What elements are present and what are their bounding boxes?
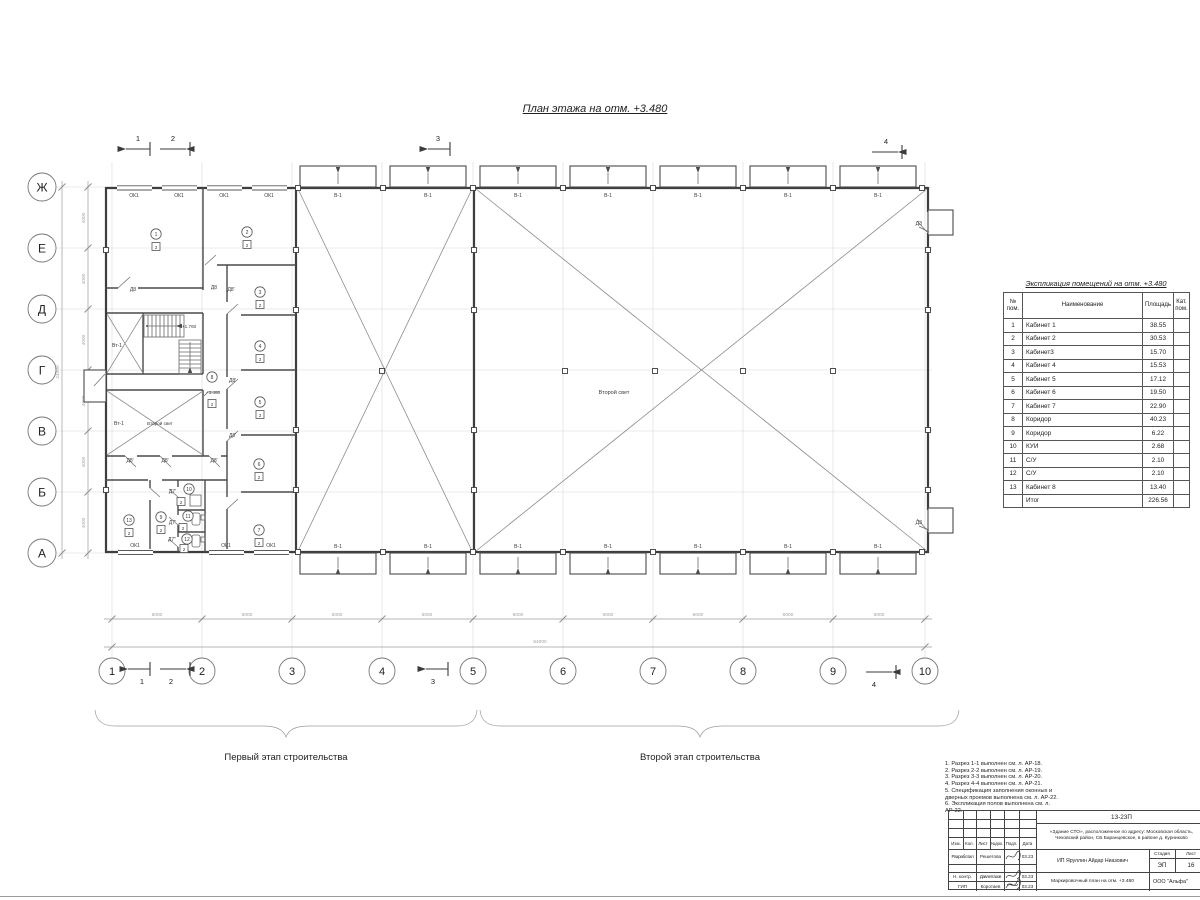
svg-text:В-1: В-1 bbox=[514, 544, 522, 550]
svg-text:11: 11 bbox=[185, 514, 190, 520]
svg-text:2: 2 bbox=[182, 526, 185, 531]
door-d7p-tag: Д7' bbox=[169, 489, 176, 495]
gate-tag: В-1 bbox=[334, 193, 342, 199]
title-block: Изм. Кол. Лист №док. Подл. Дата Разработ… bbox=[948, 810, 1200, 890]
dimension-labels: 6000 6000 6000 6000 6000 6000 6000 6000 … bbox=[55, 212, 885, 645]
room-tag: 112 bbox=[179, 511, 193, 532]
svg-text:ОК1: ОК1 bbox=[174, 193, 184, 199]
room-tag: 32 bbox=[255, 287, 265, 309]
stage-first-label: Первый этап строительства bbox=[224, 752, 348, 763]
explication-table: № пом. Наименование Площадь Кат. пом. 1 … bbox=[1003, 292, 1190, 508]
svg-text:8: 8 bbox=[740, 666, 746, 678]
svg-text:2: 2 bbox=[155, 245, 158, 250]
svg-text:Д8': Д8' bbox=[210, 458, 217, 464]
explication-row: 2 Кабинет 2 30.53 bbox=[1004, 332, 1190, 346]
signatures bbox=[949, 811, 1200, 891]
svg-text:6000: 6000 bbox=[603, 612, 614, 618]
room-tag: 62 bbox=[254, 459, 264, 481]
axis-bubbles-bottom: 1 2 3 4 5 6 7 8 9 10 bbox=[99, 658, 938, 684]
section-2: 2 bbox=[171, 134, 175, 143]
total-label: Итог bbox=[1023, 494, 1143, 508]
section-3: 3 bbox=[436, 134, 440, 143]
svg-text:2: 2 bbox=[246, 230, 249, 236]
room-tag: 12 bbox=[151, 229, 161, 251]
svg-text:4000: 4000 bbox=[81, 456, 87, 467]
room-tag: 122 bbox=[180, 534, 192, 553]
explication-row: 13 Кабинет 8 13.40 bbox=[1004, 481, 1190, 495]
svg-text:2: 2 bbox=[258, 475, 261, 480]
door-d7pp-tag: Д7" bbox=[168, 537, 176, 543]
explication: Экспликация помещений на отм. +3.480 № п… bbox=[1003, 279, 1189, 508]
svg-text:2: 2 bbox=[259, 413, 262, 418]
dim-54000: 54000 bbox=[533, 639, 547, 645]
svg-text:7: 7 bbox=[258, 528, 261, 534]
section-marks: 1 2 3 4 1 2 3 4 bbox=[126, 134, 902, 689]
col-name: Наименование bbox=[1023, 293, 1143, 319]
svg-text:6000: 6000 bbox=[874, 612, 885, 618]
section-1: 1 bbox=[136, 134, 140, 143]
col-area: Площадь bbox=[1143, 293, 1174, 319]
door-d8p-tag: Д8' bbox=[227, 287, 234, 293]
svg-text:ДЗ: ДЗ bbox=[916, 520, 922, 526]
room-tag: 132 bbox=[124, 515, 134, 537]
staircase: +1.760 bbox=[144, 315, 201, 374]
svg-text:В-1: В-1 bbox=[784, 544, 792, 550]
room-tag: 92 bbox=[156, 512, 166, 534]
svg-text:В-1: В-1 bbox=[874, 193, 882, 199]
note-line: 4. Разрез 4-4 выполнен см. л. АР-21. bbox=[945, 781, 1067, 788]
svg-text:Б: Б bbox=[38, 486, 46, 500]
grid-lines bbox=[56, 162, 932, 658]
door-d8-tag: Д8 bbox=[130, 287, 136, 293]
door-d3-tag: ДЗ bbox=[916, 221, 922, 227]
note-line: 1. Разрез 1-1 выполнен см. л. АР-18. bbox=[945, 761, 1067, 768]
svg-text:6: 6 bbox=[560, 666, 566, 678]
svg-text:6000: 6000 bbox=[693, 612, 704, 618]
svg-text:2: 2 bbox=[258, 541, 261, 546]
svg-text:Ж: Ж bbox=[36, 181, 47, 195]
col-cat: Кат. пом. bbox=[1174, 293, 1190, 319]
svg-text:В: В bbox=[38, 425, 46, 439]
svg-text:2: 2 bbox=[160, 528, 163, 533]
second-light-label: Второй свет bbox=[147, 420, 174, 426]
total-area: 226.56 bbox=[1143, 494, 1174, 508]
col-num: № пом. bbox=[1004, 293, 1023, 319]
svg-text:6000: 6000 bbox=[242, 612, 253, 618]
exit-porches bbox=[84, 210, 953, 533]
svg-text:2: 2 bbox=[169, 677, 173, 686]
svg-text:4000: 4000 bbox=[81, 517, 87, 528]
svg-text:А: А bbox=[38, 547, 46, 561]
svg-text:3: 3 bbox=[289, 666, 295, 678]
explication-title: Экспликация помещений на отм. +3.480 bbox=[1003, 279, 1189, 288]
svg-text:В-1: В-1 bbox=[424, 544, 432, 550]
explication-row: 4 Кабинет 4 15.53 bbox=[1004, 359, 1190, 373]
vt-tag: Вт-1 bbox=[112, 343, 122, 349]
explication-row: 10 КУИ 2.68 bbox=[1004, 440, 1190, 454]
explication-row: 8 Коридор 40.23 bbox=[1004, 413, 1190, 427]
room-tag: 42 bbox=[255, 341, 265, 363]
svg-text:Г: Г bbox=[39, 364, 46, 378]
section-4: 4 bbox=[884, 137, 888, 146]
svg-text:Д8': Д8' bbox=[229, 433, 236, 439]
svg-text:6: 6 bbox=[258, 462, 261, 468]
svg-text:6000: 6000 bbox=[783, 612, 794, 618]
dim-4000: 4000 bbox=[81, 212, 87, 223]
dim-6000: 6000 bbox=[152, 612, 163, 618]
svg-text:9: 9 bbox=[160, 515, 163, 521]
svg-text:Вт-1: Вт-1 bbox=[114, 421, 124, 427]
svg-text:4: 4 bbox=[259, 344, 262, 350]
svg-text:3: 3 bbox=[431, 677, 435, 686]
svg-text:2: 2 bbox=[211, 402, 214, 407]
svg-text:9: 9 bbox=[830, 666, 836, 678]
explication-row: 11 С/У 2.10 bbox=[1004, 454, 1190, 468]
svg-text:8: 8 bbox=[211, 375, 214, 381]
sheet-frame-bottom bbox=[0, 896, 1200, 897]
room8-level: +3.480 bbox=[206, 390, 221, 395]
svg-text:В-1: В-1 bbox=[334, 544, 342, 550]
gate-arrows bbox=[338, 173, 878, 568]
explication-row: 3 Кабинет3 15.70 bbox=[1004, 346, 1190, 360]
svg-text:Второй свет: Второй свет bbox=[599, 389, 630, 396]
svg-text:2: 2 bbox=[246, 243, 249, 248]
opening-tags: ОК1 ОК1 ОК1 ОК1 ОК1 ОК1 ОК1 В-1 В-1 В-1 … bbox=[112, 193, 929, 550]
svg-text:4000: 4000 bbox=[81, 273, 87, 284]
svg-text:2: 2 bbox=[183, 547, 186, 552]
svg-text:Е: Е bbox=[38, 242, 46, 256]
svg-text:В-1: В-1 bbox=[604, 544, 612, 550]
room-tag: 22 bbox=[242, 227, 252, 249]
room-tag: 52 bbox=[255, 397, 265, 419]
svg-text:6000: 6000 bbox=[422, 612, 433, 618]
svg-text:ОК1: ОК1 bbox=[264, 193, 274, 199]
svg-text:В-1: В-1 bbox=[604, 193, 612, 199]
explication-row: 7 Кабинет 7 22.90 bbox=[1004, 400, 1190, 414]
dimension-ticks bbox=[59, 184, 929, 651]
svg-text:7: 7 bbox=[650, 666, 656, 678]
note-line: 3. Разрез 3-3 выполнен см. л. АР-20. bbox=[945, 774, 1067, 781]
svg-text:10: 10 bbox=[919, 666, 931, 678]
explication-row: 1 Кабинет 1 38.55 bbox=[1004, 319, 1190, 333]
explication-row: 6 Кабинет 6 19.50 bbox=[1004, 386, 1190, 400]
svg-text:В-1: В-1 bbox=[424, 193, 432, 199]
room-tag: 72 bbox=[254, 525, 264, 547]
svg-text:Д8': Д8' bbox=[229, 378, 236, 384]
svg-text:ОК1: ОК1 bbox=[221, 543, 231, 549]
svg-text:1: 1 bbox=[155, 232, 158, 238]
drawing-sheet: План этажа на отм. +3.480 bbox=[0, 0, 1200, 900]
stage-braces: Первый этап строительства Второй этап ст… bbox=[95, 710, 959, 763]
svg-text:2: 2 bbox=[259, 357, 262, 362]
svg-text:Д: Д bbox=[38, 303, 46, 317]
room-tag: 8 +3.480 2 bbox=[204, 372, 221, 408]
axis-bubbles-left: Ж Е Д Г В Б А bbox=[28, 173, 56, 567]
sink bbox=[190, 495, 201, 506]
svg-text:2: 2 bbox=[180, 500, 183, 505]
svg-text:2: 2 bbox=[128, 531, 131, 536]
svg-text:3: 3 bbox=[259, 290, 262, 296]
svg-text:5: 5 bbox=[259, 400, 262, 406]
svg-text:6000: 6000 bbox=[332, 612, 343, 618]
svg-text:В-1: В-1 bbox=[694, 544, 702, 550]
svg-text:6000: 6000 bbox=[513, 612, 524, 618]
svg-text:Д8': Д8' bbox=[126, 458, 133, 464]
notes: 1. Разрез 1-1 выполнен см. л. АР-18.2. Р… bbox=[945, 761, 1067, 815]
svg-text:Д7': Д7' bbox=[169, 520, 176, 526]
svg-text:4000: 4000 bbox=[81, 334, 87, 345]
svg-text:В-1: В-1 bbox=[874, 544, 882, 550]
svg-text:ОК1: ОК1 bbox=[266, 543, 276, 549]
stage-second-label: Второй этап строительства bbox=[640, 752, 761, 763]
svg-text:В-1: В-1 bbox=[784, 193, 792, 199]
dimension-lines: 6000 6000 6000 6000 6000 6000 6000 6000 … bbox=[55, 181, 932, 651]
window-tag: ОК1 bbox=[129, 193, 139, 199]
note-line: 5. Спецификация заполнения оконных и две… bbox=[945, 788, 1067, 801]
svg-text:4: 4 bbox=[872, 680, 876, 689]
svg-text:5: 5 bbox=[470, 666, 476, 678]
stair-level-label: +1.760 bbox=[182, 324, 197, 329]
svg-text:В-1: В-1 bbox=[514, 193, 522, 199]
svg-text:4: 4 bbox=[379, 666, 385, 678]
explication-row: 12 С/У 2.10 bbox=[1004, 467, 1190, 481]
svg-text:10: 10 bbox=[186, 487, 192, 493]
svg-text:2: 2 bbox=[199, 666, 205, 678]
svg-text:ОК1: ОК1 bbox=[219, 193, 229, 199]
note-line: 2. Разрез 2-2 выполнен см. л. АР-19. bbox=[945, 768, 1067, 775]
svg-text:В-1: В-1 bbox=[694, 193, 702, 199]
svg-text:2: 2 bbox=[259, 303, 262, 308]
svg-text:12: 12 bbox=[184, 537, 190, 543]
svg-text:Д8': Д8' bbox=[161, 458, 168, 464]
explication-row: 5 Кабинет 5 17.12 bbox=[1004, 373, 1190, 387]
axis-label: 1 bbox=[109, 666, 115, 678]
svg-text:ОК1: ОК1 bbox=[130, 543, 140, 549]
explication-row: 9 Коридор 6.22 bbox=[1004, 427, 1190, 441]
toilet bbox=[192, 535, 200, 547]
svg-text:1: 1 bbox=[140, 677, 144, 686]
svg-text:13: 13 bbox=[126, 518, 132, 524]
svg-text:Д8: Д8 bbox=[211, 285, 217, 291]
explication-total-row: Итог 226.56 bbox=[1004, 494, 1190, 508]
